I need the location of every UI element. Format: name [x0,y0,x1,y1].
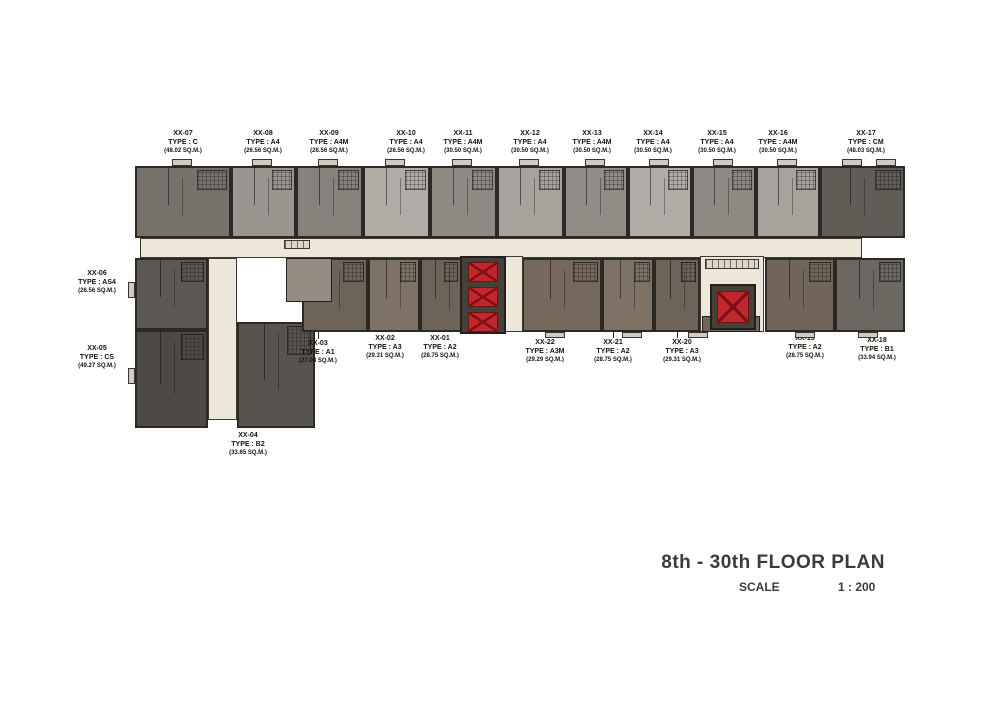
unit-XX-01-area_label: (28.75 SQ.M.) [421,352,459,361]
balcony-tab [519,159,539,166]
balcony-tab [842,159,862,166]
unit-XX-06-area_label: (26.56 SQ.M.) [78,287,116,296]
unit-XX-15-id: XX-15 [698,130,736,139]
unit-label-XX-06: XX-06TYPE : AS4(26.56 SQ.M.) [78,270,116,296]
unit-XX-07-id: XX-07 [164,130,202,139]
unit-XX-22-id: XX-22 [525,339,564,348]
unit-XX-02-id: XX-02 [366,335,404,344]
unit-XX-15-area_label: (30.50 SQ.M.) [698,147,736,156]
unit-XX-06-type_label: TYPE : AS4 [78,279,116,288]
balcony-tab [713,159,733,166]
balcony-tab [252,159,272,166]
page-title: 8th - 30th FLOOR PLAN [661,552,885,574]
unit-XX-20-id: XX-20 [663,339,701,348]
unit-XX-03-id: XX-03 [299,340,337,349]
unit-XX-09 [296,166,363,238]
unit-XX-19 [765,258,835,332]
unit-XX-08-type_label: TYPE : A4 [244,139,282,148]
balcony-tab [128,368,135,384]
unit-XX-07 [135,166,231,238]
unit-XX-16 [756,166,820,238]
balcony-tab [777,159,797,166]
unit-XX-06 [135,258,208,330]
unit-XX-02 [368,258,420,332]
scale-label: SCALE [739,580,780,594]
label-leader-XX-20 [677,332,678,338]
balcony-tab [452,159,472,166]
unit-label-XX-02: XX-02TYPE : A3(29.31 SQ.M.) [366,335,404,361]
unit-XX-01-type_label: TYPE : A2 [421,344,459,353]
balcony-tab [545,332,565,338]
unit-XX-20-area_label: (29.31 SQ.M.) [663,356,701,365]
unit-label-XX-17: XX-17TYPE : CM(48.03 SQ.M.) [847,130,885,156]
elevator-car-icon [717,291,749,323]
unit-label-XX-05: XX-05TYPE : CS(49.27 SQ.M.) [78,345,116,371]
unit-XX-17-area_label: (48.03 SQ.M.) [847,147,885,156]
unit-XX-22-type_label: TYPE : A3M [525,348,564,357]
unit-label-XX-13: XX-13TYPE : A4M(30.50 SQ.M.) [572,130,611,156]
unit-XX-17-id: XX-17 [847,130,885,139]
unit-XX-12-area_label: (30.50 SQ.M.) [511,147,549,156]
unit-XX-22-area_label: (29.29 SQ.M.) [525,356,564,365]
unit-XX-19-area_label: (28.75 SQ.M.) [786,352,824,361]
unit-XX-04-area_label: (33.65 SQ.M.) [229,449,267,458]
unit-XX-10-type_label: TYPE : A4 [387,139,425,148]
unit-XX-05-type_label: TYPE : CS [78,354,116,363]
balcony-tab [858,332,878,338]
unit-XX-16-type_label: TYPE : A4M [758,139,797,148]
unit-label-XX-20: XX-20TYPE : A3(29.31 SQ.M.) [663,339,701,365]
unit-XX-07-type_label: TYPE : C [164,139,202,148]
unit-XX-01 [420,258,462,332]
elevator-car-icon [468,312,498,332]
unit-XX-04-type_label: TYPE : B2 [229,441,267,450]
unit-XX-03-type_label: TYPE : A1 [299,349,337,358]
unit-XX-16-id: XX-16 [758,130,797,139]
unit-label-XX-21: XX-21TYPE : A2(28.75 SQ.M.) [594,339,632,365]
unit-XX-14-area_label: (30.50 SQ.M.) [634,147,672,156]
unit-XX-01-id: XX-01 [421,335,459,344]
unit-XX-04 [237,322,315,428]
unit-XX-09-type_label: TYPE : A4M [309,139,348,148]
label-leader-XX-03 [318,332,319,339]
balcony-tab [649,159,669,166]
balcony-tab [172,159,192,166]
unit-XX-18-type_label: TYPE : B1 [858,346,896,355]
unit-XX-10-area_label: (26.56 SQ.M.) [387,147,425,156]
floor-plan-page: XX-07TYPE : C(48.02 SQ.M.)XX-08TYPE : A4… [0,0,1000,707]
unit-XX-14-id: XX-14 [634,130,672,139]
unit-label-XX-22: XX-22TYPE : A3M(29.29 SQ.M.) [525,339,564,365]
unit-label-XX-07: XX-07TYPE : C(48.02 SQ.M.) [164,130,202,156]
unit-label-XX-18: XX-18TYPE : B1(33.94 SQ.M.) [858,337,896,363]
balcony-tab [622,332,642,338]
balcony-tab [128,282,135,298]
unit-XX-17-type_label: TYPE : CM [847,139,885,148]
unit-label-XX-15: XX-15TYPE : A4(30.50 SQ.M.) [698,130,736,156]
unit-XX-08 [231,166,296,238]
unit-label-XX-19: XX-19TYPE : A2(28.75 SQ.M.) [786,335,824,361]
unit-XX-11-id: XX-11 [443,130,482,139]
mailboxes-left [284,240,310,249]
unit-label-XX-04: XX-04TYPE : B2(33.65 SQ.M.) [229,432,267,458]
balcony-tab [585,159,605,166]
unit-XX-02-type_label: TYPE : A3 [366,344,404,353]
unit-XX-12-type_label: TYPE : A4 [511,139,549,148]
mailboxes-right [705,259,759,269]
unit-XX-20 [654,258,700,332]
elevator-car-icon [468,287,498,307]
unit-XX-21 [602,258,654,332]
unit-XX-21-id: XX-21 [594,339,632,348]
elevator-car-icon [468,262,498,282]
unit-XX-20-type_label: TYPE : A3 [663,348,701,357]
balcony-tab [688,332,708,338]
unit-XX-05 [135,330,208,428]
unit-label-XX-14: XX-14TYPE : A4(30.50 SQ.M.) [634,130,672,156]
unit-label-XX-09: XX-09TYPE : A4M(26.56 SQ.M.) [309,130,348,156]
unit-XX-08-area_label: (26.56 SQ.M.) [244,147,282,156]
unit-XX-10 [363,166,430,238]
unit-XX-13-area_label: (30.50 SQ.M.) [572,147,611,156]
balcony-tab [385,159,405,166]
unit-XX-04-id: XX-04 [229,432,267,441]
unit-XX-05-id: XX-05 [78,345,116,354]
stairwell-left [286,258,332,302]
unit-XX-19-type_label: TYPE : A2 [786,344,824,353]
unit-XX-11-area_label: (30.50 SQ.M.) [443,147,482,156]
corridor-main [140,238,862,258]
lobby-center [505,256,523,332]
unit-label-XX-16: XX-16TYPE : A4M(30.50 SQ.M.) [758,130,797,156]
unit-XX-11-type_label: TYPE : A4M [443,139,482,148]
unit-XX-14 [628,166,692,238]
unit-XX-10-id: XX-10 [387,130,425,139]
corridor-left-wing [208,258,237,420]
unit-XX-13 [564,166,628,238]
label-leader-XX-21 [613,332,614,338]
unit-XX-06-id: XX-06 [78,270,116,279]
unit-XX-15-type_label: TYPE : A4 [698,139,736,148]
unit-XX-14-type_label: TYPE : A4 [634,139,672,148]
unit-XX-11 [430,166,497,238]
scale-value: 1 : 200 [838,580,875,594]
unit-XX-22 [522,258,602,332]
unit-XX-12-id: XX-12 [511,130,549,139]
unit-XX-18-id: XX-18 [858,337,896,346]
unit-XX-02-area_label: (29.31 SQ.M.) [366,352,404,361]
unit-XX-21-type_label: TYPE : A2 [594,348,632,357]
unit-XX-13-type_label: TYPE : A4M [572,139,611,148]
balcony-tab [795,332,815,338]
unit-XX-08-id: XX-08 [244,130,282,139]
unit-XX-09-id: XX-09 [309,130,348,139]
unit-label-XX-03: XX-03TYPE : A1(27.08 SQ.M.) [299,340,337,366]
unit-XX-07-area_label: (48.02 SQ.M.) [164,147,202,156]
unit-XX-18-area_label: (33.94 SQ.M.) [858,354,896,363]
balcony-tab [876,159,896,166]
unit-XX-21-area_label: (28.75 SQ.M.) [594,356,632,365]
unit-label-XX-11: XX-11TYPE : A4M(30.50 SQ.M.) [443,130,482,156]
unit-XX-16-area_label: (30.50 SQ.M.) [758,147,797,156]
unit-label-XX-08: XX-08TYPE : A4(26.56 SQ.M.) [244,130,282,156]
unit-label-XX-01: XX-01TYPE : A2(28.75 SQ.M.) [421,335,459,361]
unit-XX-13-id: XX-13 [572,130,611,139]
unit-XX-05-area_label: (49.27 SQ.M.) [78,362,116,371]
balcony-tab [318,159,338,166]
unit-XX-15 [692,166,756,238]
unit-XX-09-area_label: (26.56 SQ.M.) [309,147,348,156]
unit-XX-17 [820,166,905,238]
unit-label-XX-10: XX-10TYPE : A4(26.56 SQ.M.) [387,130,425,156]
unit-XX-12 [497,166,564,238]
unit-XX-18 [835,258,905,332]
unit-label-XX-12: XX-12TYPE : A4(30.50 SQ.M.) [511,130,549,156]
unit-XX-03-area_label: (27.08 SQ.M.) [299,357,337,366]
